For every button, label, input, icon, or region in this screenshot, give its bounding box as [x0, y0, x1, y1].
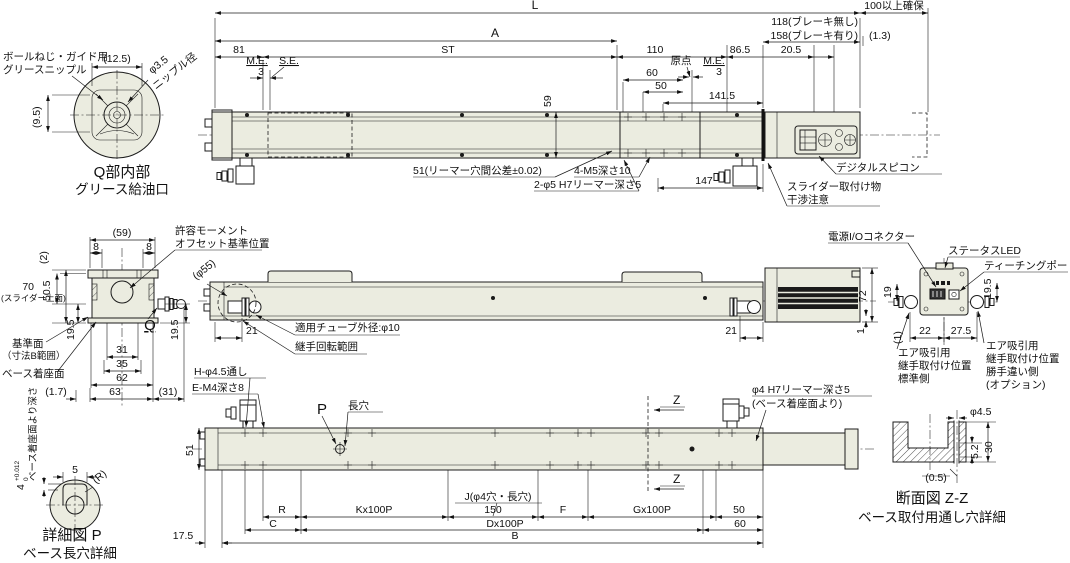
note-interference-1: スライダー取付け物	[787, 180, 881, 193]
note-reamer-bottom-1: φ4 H7リーマー深さ5	[752, 384, 850, 396]
dim-50: 50	[655, 80, 667, 92]
top-view: L 100以上確保 A 118(ブレーキ無し) 158(ブレーキ有り) (1.3…	[198, 0, 942, 206]
section-zz-caption-2: ベース取付用通し穴詳細	[858, 510, 1006, 525]
note-status-led: ステータスLED	[948, 245, 1021, 257]
dim-2-paren: (2)	[38, 251, 50, 264]
note-air-std-1: エア吸引用	[898, 346, 951, 359]
dim-c: C	[269, 518, 277, 530]
detail-q-caption-1: Q部内部	[94, 164, 151, 181]
dim-3-left: 3	[258, 66, 264, 78]
dim-19: 19	[882, 286, 894, 298]
dim-brake-with: 158(ブレーキ有り)	[770, 29, 858, 42]
air-fitting-end-left	[894, 296, 918, 309]
dim-59-paren: (59)	[113, 227, 132, 239]
dim-63: 63	[109, 386, 121, 398]
label-datum-2: （寸法B範囲）	[2, 350, 65, 362]
dim-8-right: 8	[146, 241, 152, 253]
dim-1: 1	[855, 328, 867, 334]
label-p-ref: P	[317, 401, 327, 418]
cover-bump-side-view	[622, 272, 702, 282]
dim-31: 31	[116, 344, 128, 356]
dim-5-2: 5.2	[969, 444, 981, 459]
note-e-holes: E-M4深さ8	[192, 382, 244, 394]
dim-70: 70	[22, 281, 34, 293]
nipple-note-line1: ボールねじ・ガイド用	[3, 51, 108, 63]
dim-30: 30	[983, 441, 995, 453]
dim-1-paren: (1)	[892, 331, 904, 344]
detail-p-view: 5 (R) 4 +0.012 0 ベース着座面より深さ 詳細図 P ベース長穴詳…	[14, 387, 117, 561]
air-fitting-side-right	[730, 298, 761, 316]
dim-a: A	[491, 26, 499, 40]
label-slider-top: (スライダー上面)	[1, 293, 66, 303]
note-reamer-holes: 2-φ5 H7リーマー深さ5	[534, 179, 641, 191]
dim-k-pitch: Kx100P	[356, 504, 393, 516]
dim-g-pitch: Gx100P	[633, 504, 671, 516]
note-reamer-pitch: 51(リーマー穴間公差±0.02)	[413, 164, 542, 177]
dim-0-5: (0.5)	[925, 472, 947, 484]
dim-21-right: 21	[725, 325, 737, 337]
slider-top-plate	[88, 270, 158, 278]
dim-81: 81	[233, 44, 245, 56]
dim-3-right: 3	[716, 66, 722, 78]
dim-50-bottom: 50	[733, 504, 745, 516]
dim-21-left: 21	[246, 325, 258, 337]
dim-19-5-right: 19.5	[169, 319, 181, 340]
dim-phi-4-5: φ4.5	[970, 406, 992, 418]
label-z-top: Z	[673, 393, 680, 407]
side-view-rail	[210, 282, 763, 320]
dim-nipple-height: (9.5)	[31, 106, 43, 128]
note-power-connector: 電源I/Oコネクター	[828, 230, 915, 243]
note-moment-2: オフセット基準位置	[175, 237, 270, 250]
dim-86-5: 86.5	[730, 44, 751, 56]
air-fitting-bottom-left	[226, 400, 256, 428]
dim-slot-radius: (R)	[90, 468, 109, 487]
label-z-bottom: Z	[673, 472, 680, 486]
dim-overall-length: L	[532, 0, 539, 12]
dim-f: F	[560, 504, 566, 516]
dim-60: 60	[734, 518, 746, 530]
label-j-holes: J(φ4穴・長穴)	[465, 490, 532, 503]
dim-d-pitch: Dx100P	[486, 518, 523, 530]
dim-72: 72	[857, 290, 869, 302]
air-fitting-side-left	[228, 298, 261, 316]
note-interference-2: 干渉注意	[787, 193, 829, 206]
note-tube: 適用チューブ外径:φ10	[295, 321, 400, 334]
dim-clearance: 100以上確保	[864, 0, 924, 12]
top-view-rail	[212, 112, 763, 158]
dim-19-5-end: 19.5	[982, 278, 994, 299]
section-zz-view: φ4.5 5.2 30 (0.5) 断面図 Z-Z ベース取付用通し穴詳細	[858, 406, 1006, 525]
bottom-view: H-φ4.5通し E-M4深さ8 P 長穴 51 φ4 H7リーマー深さ5 (ベ…	[173, 366, 876, 548]
motor-housing-top-view	[765, 112, 860, 158]
detail-p-caption-2: ベース長穴詳細	[23, 546, 117, 561]
dim-60: 60	[646, 67, 658, 79]
label-me-left: M.E.	[246, 55, 268, 67]
note-air-std-2: 継手取付け位置	[898, 359, 972, 372]
dim-62: 62	[116, 372, 128, 384]
motor-housing-bottom-view	[763, 433, 845, 465]
section-zz-caption-1: 断面図 Z-Z	[896, 490, 969, 507]
dim-35: 35	[116, 358, 128, 370]
slider-side-view	[268, 271, 352, 282]
dim-b: B	[511, 530, 518, 542]
bottom-view-rail	[205, 428, 763, 470]
label-slot: 長穴	[348, 399, 369, 412]
note-moment-1: 許容モーメント	[175, 224, 248, 237]
air-fitting-top-right	[714, 158, 757, 186]
dim-27-5: 27.5	[951, 325, 972, 337]
dim-31-paren: (31)	[159, 386, 178, 398]
dim-gap: (1.3)	[869, 30, 891, 42]
teaching-port-icon	[949, 290, 959, 299]
dim-150: 150	[484, 504, 502, 516]
dim-slot-depth: 4	[15, 484, 27, 490]
label-datum-1: 基準面	[12, 337, 44, 350]
dim-8-left: 8	[93, 241, 99, 253]
label-se: S.E.	[279, 55, 299, 67]
air-fitting-top-left	[217, 158, 254, 184]
drawing-page: (12.5) (9.5) ボールねじ・ガイド用 グリースニップル φ3.5 ニッ…	[0, 0, 1070, 563]
note-m5-holes: 4-M5深さ10	[574, 165, 631, 177]
note-air-std-3: 標準側	[898, 372, 930, 385]
dim-slot-tol-upper: +0.012	[14, 461, 21, 481]
note-teaching-port: ティーチングポート	[984, 259, 1070, 272]
note-air-opt-1: エア吸引用	[986, 339, 1039, 352]
note-air-opt-2: 継手取付け位置	[986, 352, 1060, 365]
dim-141-5: 141.5	[709, 90, 735, 102]
dim-slot-width: 5	[72, 464, 78, 476]
label-seating: ベース着座面	[2, 367, 64, 380]
note-h-holes: H-φ4.5通し	[194, 366, 247, 378]
dim-147: 147	[695, 175, 713, 187]
dim-59: 59	[542, 95, 554, 107]
dim-1-7: (1.7)	[45, 386, 67, 398]
detail-p-caption-1: 詳細図 P	[42, 527, 101, 544]
label-q-ref: Q	[144, 317, 156, 334]
nipple-note-line2: グリースニップル	[3, 63, 86, 76]
dim-19-5-left: 19.5	[65, 319, 77, 340]
air-fitting-bottom-right	[723, 399, 749, 428]
dim-phi55: (φ55)	[190, 257, 217, 282]
dim-stroke: ST	[441, 44, 455, 56]
dim-17-5: 17.5	[173, 530, 194, 542]
label-origin: 原点	[671, 55, 692, 67]
dim-51-bottom: 51	[184, 444, 196, 456]
side-view: (φ55) 21 適用チューブ外径:φ10 継手回転範囲 21 72 1	[190, 257, 878, 354]
detail-q-caption-2: グリース給油口	[75, 182, 169, 197]
front-view-body	[92, 278, 154, 318]
note-rotation: 継手回転範囲	[295, 340, 358, 353]
status-led-icon	[936, 263, 953, 269]
note-reamer-bottom-2: (ベース着座面より)	[752, 397, 842, 410]
dim-brake-none: 118(ブレーキ無し)	[771, 15, 858, 28]
drawing-canvas: (12.5) (9.5) ボールねじ・ガイド用 グリースニップル φ3.5 ニッ…	[0, 0, 1070, 563]
dim-22: 22	[919, 325, 931, 337]
note-air-opt-3: 勝手違い側	[986, 365, 1039, 378]
end-view: 電源I/Oコネクター ステータスLED ティーチングポート 19 19.5 (1…	[828, 230, 1070, 391]
note-speed-controller: デジタルスピコン	[836, 161, 920, 174]
note-slot-depth-ref: ベース着座面より深さ	[27, 387, 39, 481]
dim-r: R	[278, 504, 286, 516]
detail-q-view: (12.5) (9.5) ボールねじ・ガイド用 グリースニップル φ3.5 ニッ…	[3, 49, 200, 197]
note-air-opt-4: (オプション)	[986, 379, 1046, 391]
dim-20-5: 20.5	[781, 44, 802, 56]
dim-110: 110	[647, 44, 664, 56]
